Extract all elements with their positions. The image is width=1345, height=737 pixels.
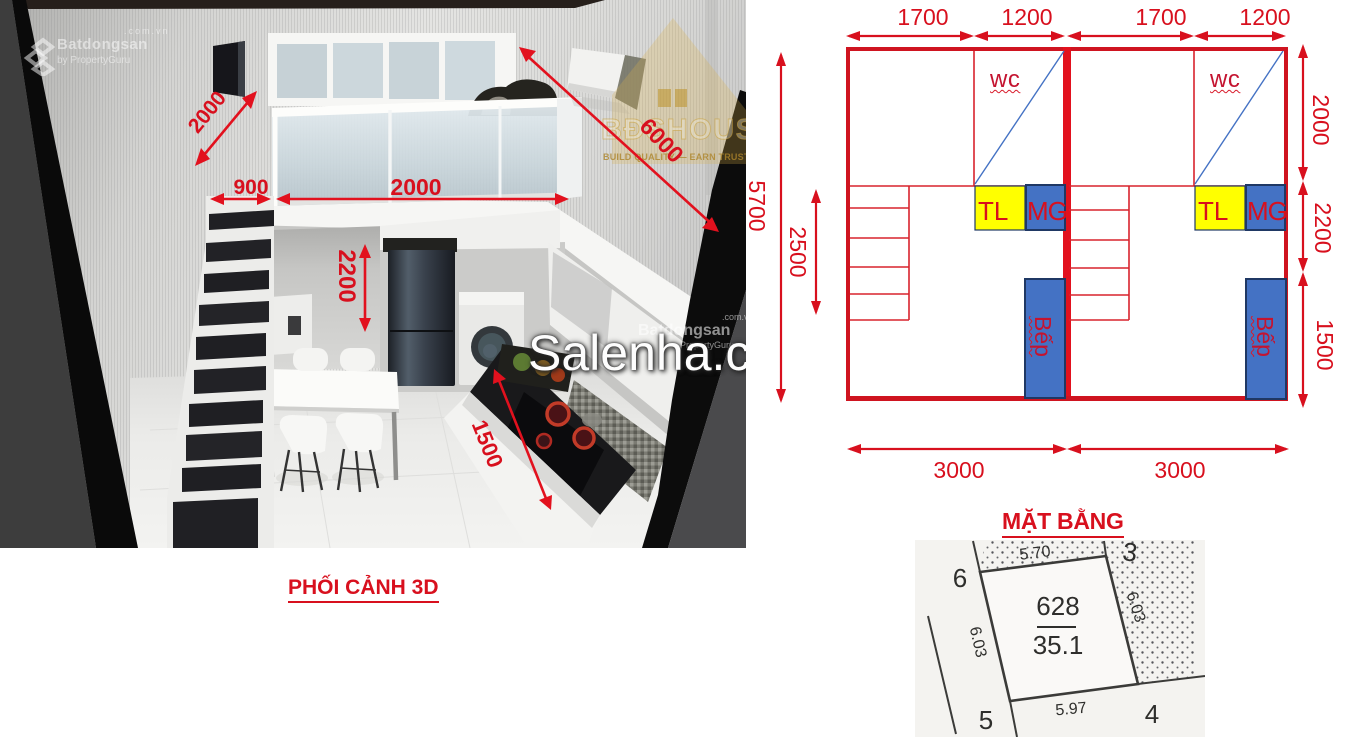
svg-text:1700: 1700 bbox=[1135, 4, 1186, 30]
svg-text:1200: 1200 bbox=[1239, 4, 1290, 30]
svg-text:MG: MG bbox=[1247, 196, 1287, 226]
svg-text:MG: MG bbox=[1027, 196, 1067, 226]
svg-text:4: 4 bbox=[1145, 699, 1159, 729]
svg-text:2000: 2000 bbox=[1308, 94, 1334, 145]
svg-text:1500: 1500 bbox=[1312, 319, 1338, 370]
svg-text:1200: 1200 bbox=[1001, 4, 1052, 30]
svg-text:1700: 1700 bbox=[897, 4, 948, 30]
svg-text:2500: 2500 bbox=[785, 226, 811, 277]
svg-text:35.1: 35.1 bbox=[1033, 630, 1084, 660]
svg-text:3000: 3000 bbox=[933, 457, 984, 483]
svg-text:TL: TL bbox=[1198, 196, 1228, 226]
svg-text:5700: 5700 bbox=[744, 180, 770, 231]
svg-text:2000: 2000 bbox=[390, 174, 441, 200]
svg-text:TL: TL bbox=[978, 196, 1008, 226]
svg-text:900: 900 bbox=[233, 176, 268, 199]
svg-text:5.97: 5.97 bbox=[1055, 700, 1088, 720]
svg-text:5: 5 bbox=[979, 705, 993, 735]
svg-text:3000: 3000 bbox=[1154, 457, 1205, 483]
svg-text:2200: 2200 bbox=[1310, 202, 1336, 253]
svg-text:2200: 2200 bbox=[333, 249, 360, 302]
svg-text:6: 6 bbox=[953, 563, 967, 593]
svg-text:628: 628 bbox=[1036, 591, 1079, 621]
